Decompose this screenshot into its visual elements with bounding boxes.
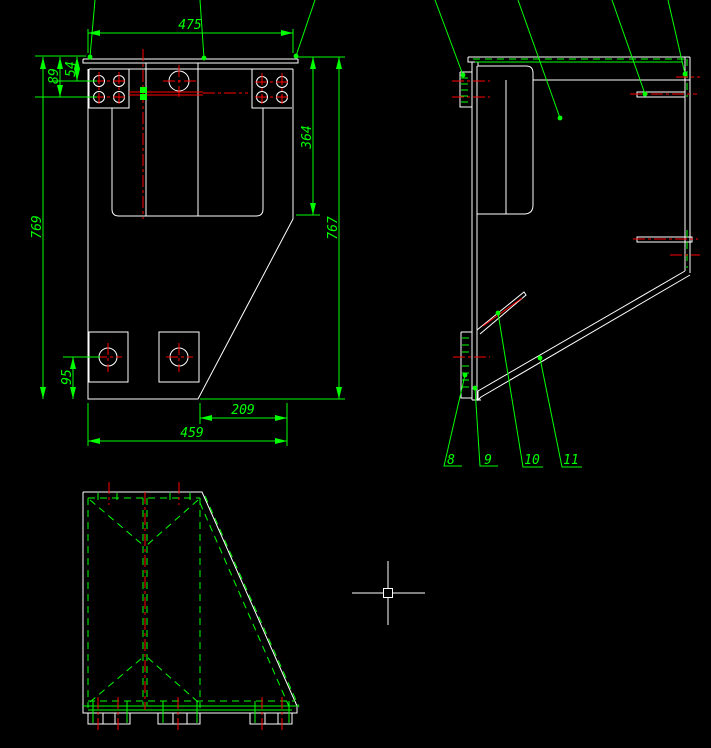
dim-769[interactable]: 769 [30, 215, 45, 238]
dim-459[interactable]: 459 [180, 426, 203, 441]
callout-10[interactable]: 10 [524, 453, 540, 468]
dim-767[interactable]: 767 [326, 216, 341, 240]
main-plate-edge [472, 62, 481, 400]
callout-9[interactable]: 9 [484, 453, 492, 468]
rib-edge [477, 80, 533, 214]
dim-top-width[interactable]: 475 [178, 18, 202, 33]
side-centerlines[interactable] [452, 77, 700, 357]
side-hidden-lines[interactable] [461, 59, 688, 387]
front-centerlines[interactable] [92, 49, 289, 372]
left-bolt-plate [89, 69, 129, 108]
crosshair-cursor [352, 561, 425, 625]
front-view[interactable]: 475 54 89 769 95 459 209 364 767 [30, 0, 345, 446]
side-leader-lines[interactable] [435, 0, 687, 120]
right-bolt-plate [252, 69, 292, 108]
callouts[interactable]: 8 9 10 11 [444, 311, 582, 468]
front-outline[interactable] [83, 59, 298, 399]
callout-8[interactable]: 8 [447, 453, 455, 468]
dim-89[interactable]: 89 [47, 68, 62, 84]
foot [158, 713, 200, 724]
top-outline[interactable] [83, 492, 297, 724]
side-outline[interactable] [460, 57, 692, 400]
top-view[interactable] [83, 482, 299, 731]
cad-viewport: 475 54 89 769 95 459 209 364 767 [0, 0, 711, 748]
diagonal-plate [478, 271, 690, 400]
dim-209[interactable]: 209 [231, 403, 254, 418]
lower-tab [461, 332, 472, 398]
dim-95[interactable]: 95 [60, 369, 75, 385]
center-rib-edges [146, 63, 198, 216]
callout-11[interactable]: 11 [563, 453, 579, 468]
gusset-centerline [483, 298, 522, 326]
foot [250, 713, 292, 724]
foot [88, 713, 130, 724]
cad-canvas: 475 54 89 769 95 459 209 364 767 [0, 0, 711, 748]
u-slot [112, 108, 263, 216]
dim-364[interactable]: 364 [300, 125, 315, 149]
dim-54[interactable]: 54 [64, 61, 79, 77]
side-view[interactable]: 8 9 10 11 [435, 0, 700, 468]
top-hidden-lines[interactable] [83, 493, 299, 723]
pickbox [384, 589, 393, 598]
